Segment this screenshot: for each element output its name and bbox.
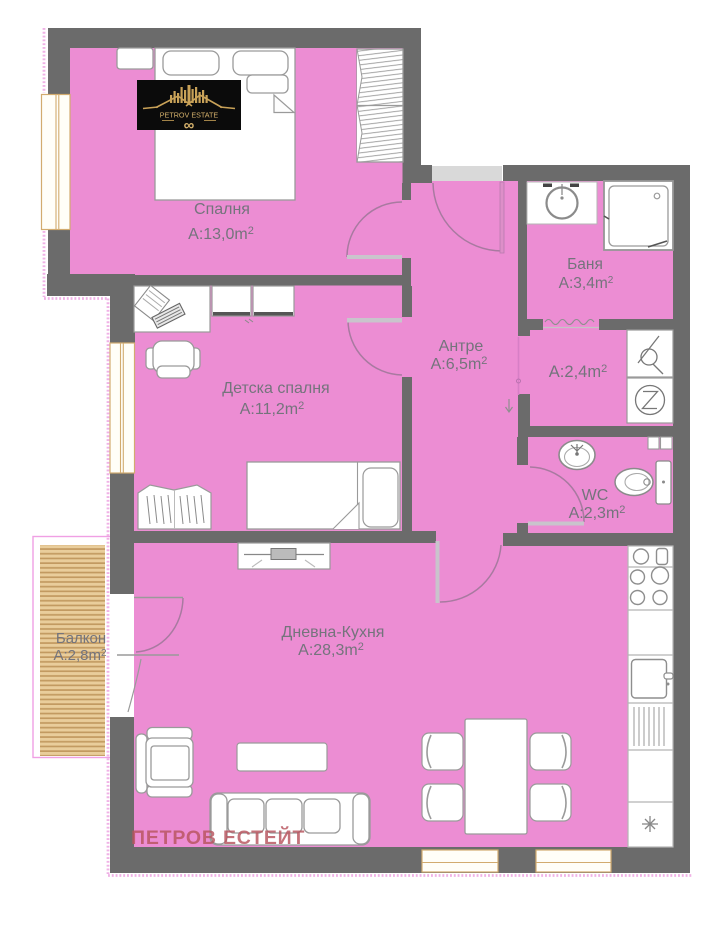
svg-text:A:28,3m2: A:28,3m2 [298,641,364,659]
svg-text:A:11,2m2: A:11,2m2 [240,400,305,418]
svg-text:∞: ∞ [184,117,195,134]
svg-text:A:2,3m2: A:2,3m2 [569,504,626,522]
svg-text:ПЕТРОВ ЕСТЕЙТ: ПЕТРОВ ЕСТЕЙТ [131,825,305,849]
svg-text:A:2,4m2: A:2,4m2 [549,363,607,381]
svg-text:Антре: Антре [439,338,484,355]
svg-text:WC: WC [582,487,609,504]
svg-text:A:2,8m2: A:2,8m2 [53,647,107,664]
svg-text:A:6,5m2: A:6,5m2 [431,355,488,373]
svg-text:Дневна-Кухня: Дневна-Кухня [282,624,385,641]
svg-text:A:3,4m2: A:3,4m2 [559,275,614,292]
svg-text:Спалня: Спалня [194,201,250,218]
svg-text:A:13,0m2: A:13,0m2 [188,225,254,243]
svg-text:Баня: Баня [567,256,603,273]
svg-text:Балкон: Балкон [56,630,106,647]
svg-text:Детска спалня: Детска спалня [222,380,329,397]
